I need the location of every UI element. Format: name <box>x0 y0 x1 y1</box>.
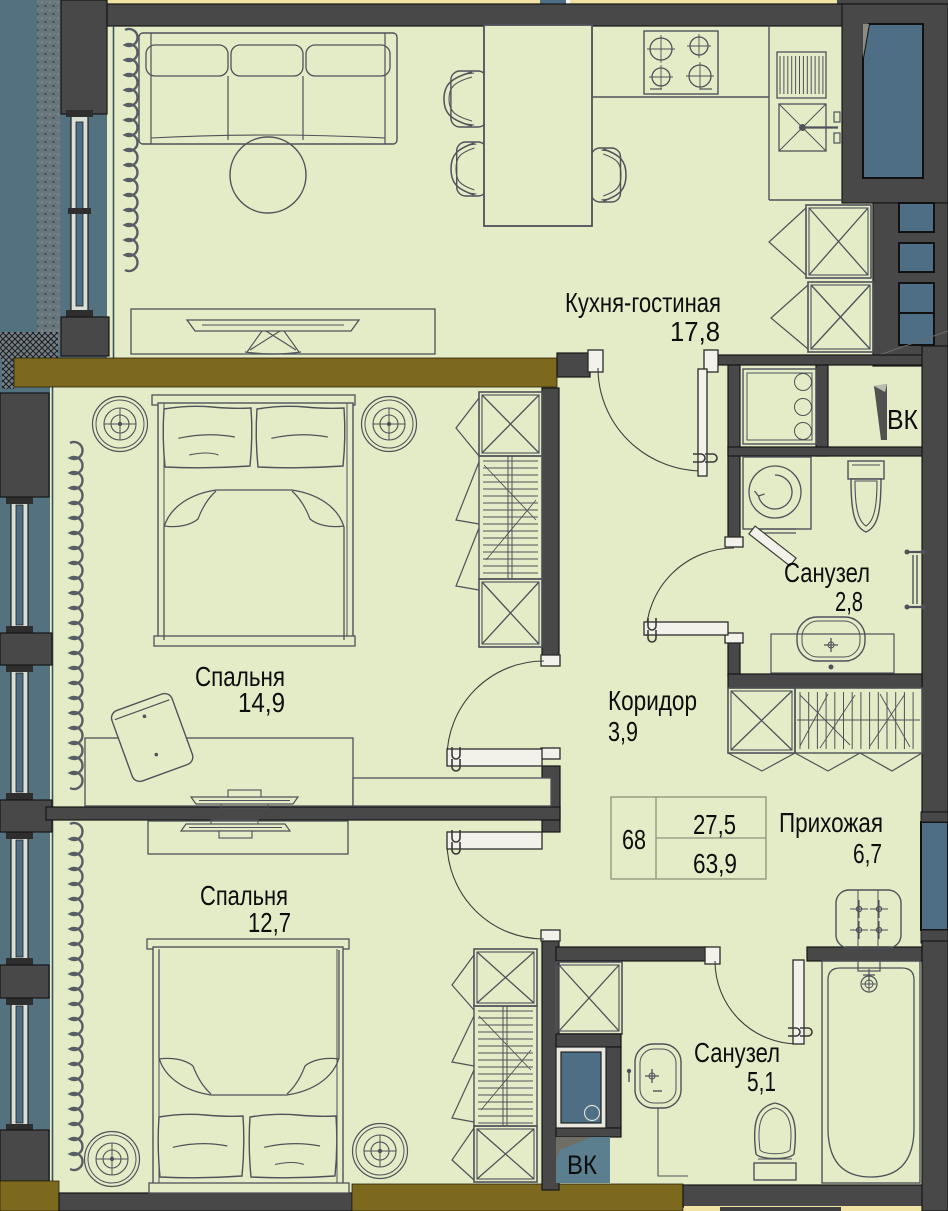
svg-text:Прихожая: Прихожая <box>779 807 883 838</box>
svg-text:Санузел: Санузел <box>694 1037 780 1068</box>
svg-text:ВК: ВК <box>887 404 919 435</box>
svg-text:5,1: 5,1 <box>747 1066 776 1097</box>
svg-text:Санузел: Санузел <box>784 557 870 588</box>
svg-text:17,8: 17,8 <box>670 316 720 347</box>
svg-text:Коридор: Коридор <box>608 685 697 716</box>
svg-text:63,9: 63,9 <box>693 848 737 879</box>
svg-text:12,7: 12,7 <box>248 907 291 938</box>
svg-text:6,7: 6,7 <box>853 838 882 869</box>
svg-text:2,8: 2,8 <box>835 586 863 617</box>
svg-text:3,9: 3,9 <box>608 716 638 747</box>
svg-text:14,9: 14,9 <box>238 687 285 718</box>
svg-text:ВК: ВК <box>567 1150 597 1180</box>
svg-text:Кухня-гостиная: Кухня-гостиная <box>565 287 721 318</box>
svg-text:27,5: 27,5 <box>693 809 736 840</box>
svg-text:68: 68 <box>622 824 646 855</box>
